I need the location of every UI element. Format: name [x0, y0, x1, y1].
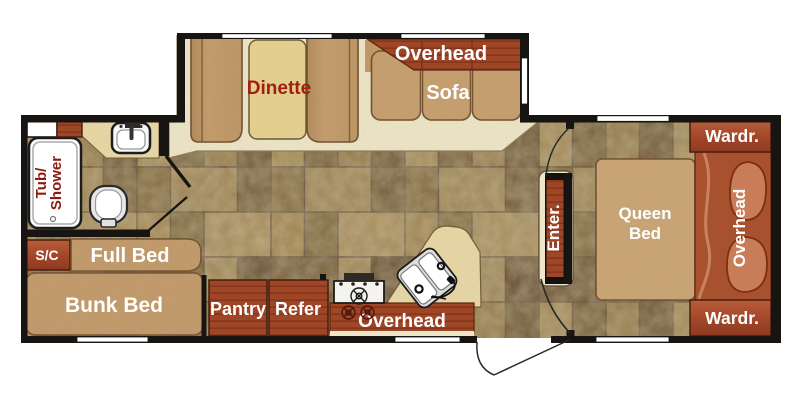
svg-text:Refer: Refer [275, 299, 321, 319]
svg-text:Bed: Bed [629, 224, 661, 243]
svg-text:Bunk Bed: Bunk Bed [65, 294, 163, 317]
svg-text:Wardr.: Wardr. [705, 308, 759, 328]
svg-text:Wardr.: Wardr. [705, 126, 759, 146]
svg-text:Dinette: Dinette [247, 78, 311, 99]
svg-text:Shower: Shower [48, 156, 65, 210]
svg-text:S/C: S/C [35, 247, 58, 263]
svg-text:Overhead: Overhead [395, 43, 487, 65]
svg-text:Queen: Queen [619, 204, 672, 223]
svg-text:Full Bed: Full Bed [91, 245, 170, 267]
svg-text:Overhead: Overhead [730, 189, 749, 267]
svg-text:Enter.: Enter. [544, 204, 563, 251]
svg-text:Overhead: Overhead [358, 311, 446, 332]
svg-text:Pantry: Pantry [210, 299, 266, 319]
svg-text:Sofa: Sofa [426, 82, 470, 104]
